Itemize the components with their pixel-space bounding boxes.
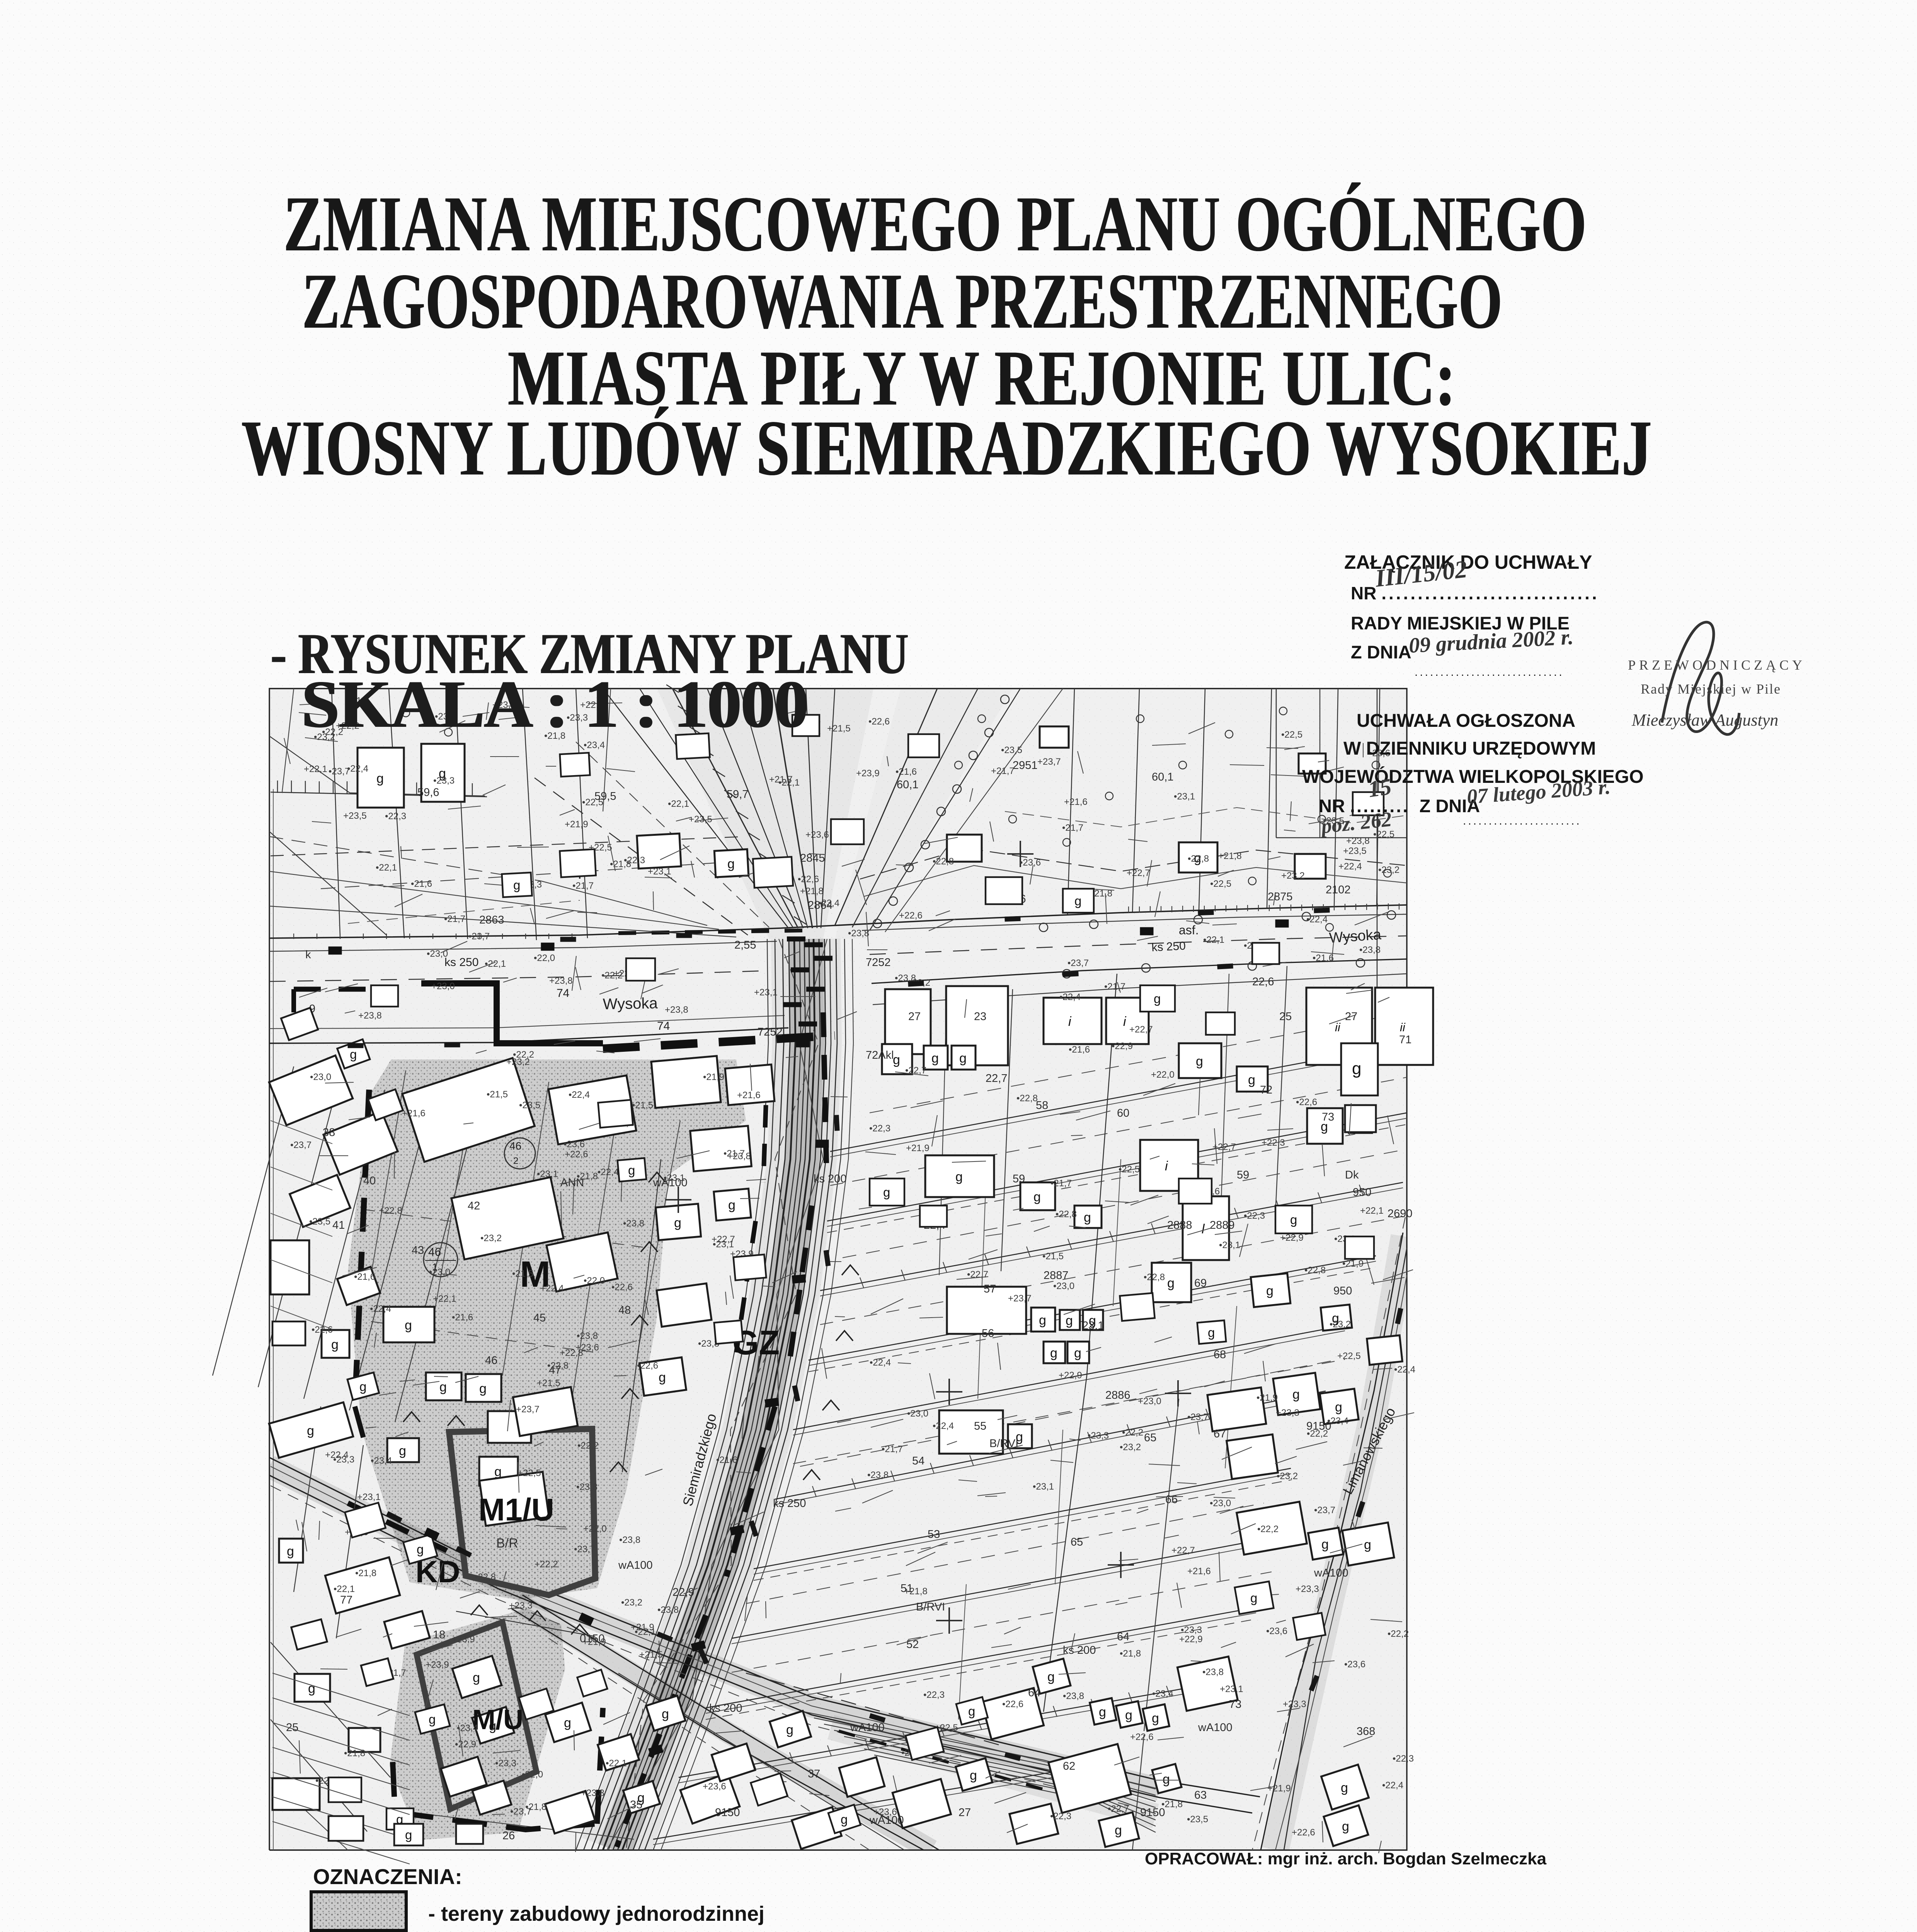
svg-text:25: 25	[1279, 1010, 1292, 1023]
svg-text:+23,8: +23,8	[549, 976, 573, 986]
svg-text:B/R: B/R	[496, 1536, 518, 1551]
svg-text:+22,4: +22,4	[1338, 861, 1362, 872]
svg-text:73: 73	[1322, 1111, 1334, 1123]
svg-text:•21,5: •21,5	[632, 1100, 653, 1111]
svg-text:g: g	[1364, 1537, 1371, 1552]
svg-text:ks 250: ks 250	[1151, 939, 1186, 954]
svg-text:2886: 2886	[1105, 1389, 1130, 1401]
svg-text:g: g	[1115, 1823, 1122, 1838]
svg-text:g: g	[376, 771, 384, 786]
svg-text:•22,3: •22,3	[624, 855, 645, 866]
svg-text:60: 60	[1117, 1107, 1129, 1119]
svg-text:B/RVI: B/RVI	[989, 1437, 1018, 1450]
svg-text:•23,6: •23,6	[1020, 857, 1041, 868]
svg-text:g: g	[1074, 894, 1081, 908]
svg-text:g: g	[1050, 1346, 1057, 1361]
svg-text:Dk: Dk	[1345, 1169, 1359, 1181]
svg-text:•23,1: •23,1	[537, 1169, 558, 1179]
svg-text:+22,6: +22,6	[899, 910, 923, 921]
svg-text:+23,0: +23,0	[1138, 1396, 1161, 1406]
svg-text:g: g	[893, 1053, 900, 1067]
svg-text:•22,1: •22,1	[1203, 935, 1224, 945]
svg-text:•22,3: •22,3	[1393, 1753, 1414, 1764]
svg-text:+23,1: +23,1	[754, 987, 778, 998]
svg-text:•22,0: •22,0	[522, 1769, 543, 1780]
svg-text:•22,0: •22,0	[584, 1276, 605, 1286]
svg-text:•22,4: •22,4	[933, 1421, 954, 1431]
svg-text:+22,2: +22,2	[535, 1559, 558, 1570]
svg-text:27: 27	[908, 1010, 921, 1023]
svg-text:69: 69	[1194, 1277, 1207, 1289]
svg-text:g: g	[439, 1380, 447, 1395]
svg-text:68: 68	[1214, 1349, 1226, 1361]
svg-text:38: 38	[323, 1126, 335, 1139]
svg-text:g: g	[674, 1216, 681, 1230]
svg-text:+21,9: +21,9	[906, 1143, 930, 1153]
svg-text:Wysoka: Wysoka	[603, 995, 658, 1013]
svg-text:•22,8: •22,8	[1016, 1093, 1038, 1104]
svg-text:2,55: 2,55	[734, 939, 756, 951]
svg-text:+23,1: +23,1	[648, 866, 671, 877]
svg-text:•23,8: •23,8	[619, 1535, 640, 1545]
svg-text:•21,6: •21,6	[1313, 953, 1334, 963]
svg-text:•23,7: •23,7	[1314, 1505, 1335, 1515]
svg-text:67: 67	[1214, 1428, 1226, 1440]
svg-text:74: 74	[557, 987, 569, 1000]
svg-text:g: g	[513, 878, 520, 892]
svg-text:+22,7: +22,7	[1171, 1545, 1195, 1556]
svg-text:66: 66	[1165, 1493, 1178, 1506]
svg-text:9150: 9150	[715, 1806, 740, 1819]
svg-text:•22,6: •22,6	[637, 1361, 658, 1371]
svg-text:+23,6: +23,6	[703, 1781, 726, 1792]
svg-text:g: g	[564, 1716, 571, 1730]
svg-text:+22,7: +22,7	[1127, 868, 1150, 878]
svg-text:•21,7: •21,7	[1104, 981, 1125, 992]
svg-text:•23,8: •23,8	[1359, 945, 1381, 955]
svg-text:•23,1: •23,1	[664, 1173, 685, 1183]
svg-text:g: g	[728, 1198, 735, 1213]
svg-text:•21,9: •21,9	[1342, 1259, 1364, 1269]
svg-text:g: g	[1341, 1781, 1348, 1795]
svg-text:g: g	[1167, 1276, 1175, 1291]
svg-text:73: 73	[1229, 1698, 1241, 1711]
svg-text:•23,2: •23,2	[1330, 1319, 1351, 1330]
svg-text:+21,5: +21,5	[827, 723, 851, 734]
svg-text:•22,4: •22,4	[1306, 914, 1328, 925]
svg-text:+22,5: +22,5	[1337, 1351, 1361, 1361]
svg-text:+22,0: +22,0	[583, 1524, 607, 1534]
svg-text:•22,8: •22,8	[1304, 1265, 1326, 1276]
svg-text:•22,4: •22,4	[347, 764, 368, 774]
svg-text:•22,3: •22,3	[869, 1123, 890, 1134]
svg-text:g: g	[959, 1051, 967, 1066]
svg-text:g: g	[473, 1670, 480, 1685]
svg-text:•22,6: •22,6	[312, 1325, 333, 1335]
svg-text:g: g	[659, 1370, 666, 1385]
svg-text:g: g	[727, 857, 735, 871]
svg-text:•22,5: •22,5	[1210, 879, 1231, 889]
svg-text:g: g	[1099, 1705, 1106, 1719]
svg-text:•21,7: •21,7	[882, 1444, 903, 1454]
svg-text:•21,5: •21,5	[512, 1269, 533, 1279]
svg-text:•23,4: •23,4	[1327, 1416, 1348, 1426]
svg-text:+21,6: +21,6	[1064, 797, 1088, 807]
svg-text:•23,6: •23,6	[1266, 1626, 1287, 1636]
svg-text:•23,8: •23,8	[867, 1470, 889, 1480]
svg-text:7252: 7252	[866, 956, 891, 969]
svg-text:•23,7: •23,7	[329, 766, 350, 777]
svg-text:+23,3: +23,3	[1296, 1584, 1319, 1594]
svg-text:g: g	[331, 1337, 339, 1352]
svg-text:g: g	[1066, 1313, 1073, 1328]
svg-text:•23,7: •23,7	[1067, 958, 1089, 968]
svg-text:g: g	[405, 1828, 412, 1842]
svg-text:•22,4: •22,4	[1382, 1780, 1403, 1791]
svg-text:+23,7: +23,7	[1008, 1293, 1032, 1304]
svg-text:•23,2: •23,2	[1378, 865, 1399, 875]
svg-text:g: g	[399, 1444, 406, 1458]
svg-text:•22,9: •22,9	[1112, 1041, 1133, 1051]
svg-text:+22,6: +22,6	[565, 1149, 588, 1160]
svg-text:g: g	[1084, 1210, 1091, 1225]
svg-text:•23,7: •23,7	[1187, 1412, 1209, 1422]
svg-text:g: g	[479, 1381, 487, 1396]
svg-text:37: 37	[808, 1768, 820, 1780]
svg-text:•23,8: •23,8	[577, 1331, 598, 1341]
svg-text:•23,3: •23,3	[1181, 1625, 1202, 1635]
svg-text:+22,4: +22,4	[540, 1283, 564, 1294]
svg-text:g: g	[1250, 1591, 1257, 1605]
svg-text:•21,8: •21,8	[355, 1568, 376, 1578]
svg-text:+22,1: +22,1	[433, 1294, 456, 1304]
svg-text:•21,7: •21,7	[1050, 1178, 1072, 1189]
svg-text:g: g	[308, 1681, 315, 1696]
svg-text:g: g	[1033, 1190, 1041, 1204]
svg-text:g: g	[841, 1812, 848, 1827]
svg-text:+22,5: +22,5	[518, 1468, 541, 1478]
svg-text:•22,1: •22,1	[635, 1627, 656, 1637]
svg-text:54: 54	[912, 1455, 924, 1467]
svg-text:g: g	[662, 1707, 669, 1721]
svg-text:•21,6: •21,6	[716, 1455, 737, 1465]
svg-text:60,1: 60,1	[897, 779, 918, 791]
svg-text:2887: 2887	[1044, 1269, 1069, 1282]
svg-text:•23,1: •23,1	[713, 1239, 734, 1250]
svg-text:+21,6: +21,6	[1187, 1566, 1211, 1577]
svg-text:+23,8: +23,8	[665, 1005, 688, 1015]
svg-text:74: 74	[657, 1020, 670, 1032]
svg-text:•22,0: •22,0	[534, 953, 555, 963]
svg-text:g: g	[970, 1768, 977, 1783]
svg-text:•23,7: •23,7	[574, 1544, 595, 1554]
svg-text:M/U: M/U	[472, 1704, 523, 1735]
svg-text:•23,5: •23,5	[309, 1216, 330, 1227]
svg-text:65: 65	[1144, 1432, 1156, 1444]
svg-text:ks 200: ks 200	[1063, 1644, 1096, 1656]
svg-text:•22,1: •22,1	[485, 959, 506, 969]
svg-text:+22,0: +22,0	[1151, 1070, 1175, 1080]
svg-text:ii: ii	[1335, 1020, 1341, 1034]
svg-text:•21,6: •21,6	[411, 879, 432, 889]
svg-text:•22,2: •22,2	[1388, 1629, 1409, 1639]
svg-text:•21,5: •21,5	[1042, 1251, 1064, 1262]
svg-text:•23,4: •23,4	[818, 898, 839, 908]
svg-text:•23,2: •23,2	[621, 1597, 642, 1608]
svg-text:•21,9: •21,9	[1256, 1393, 1278, 1403]
svg-text:•22,1: •22,1	[376, 862, 397, 873]
svg-text:+21,7: +21,7	[991, 766, 1015, 776]
svg-text:+23,3: +23,3	[1276, 1408, 1299, 1418]
svg-text:+21,8: +21,8	[904, 1586, 928, 1597]
svg-text:+23,7: +23,7	[1037, 757, 1061, 767]
svg-text:41: 41	[332, 1219, 345, 1231]
svg-text:+22,6: +22,6	[1130, 1732, 1154, 1742]
svg-text:•22,1: •22,1	[606, 1758, 627, 1769]
svg-text:•21,8: •21,8	[344, 1748, 365, 1759]
svg-text:•22,6: •22,6	[1296, 1097, 1317, 1107]
svg-text:71: 71	[1399, 1034, 1411, 1046]
svg-text:•23,4: •23,4	[371, 1456, 392, 1466]
svg-text:wA100: wA100	[1314, 1567, 1348, 1579]
svg-text:g: g	[883, 1185, 890, 1199]
svg-text:g: g	[931, 1051, 939, 1066]
svg-text:+23,3: +23,3	[509, 1600, 533, 1611]
svg-text:•23,5: •23,5	[1001, 745, 1022, 755]
svg-text:+23,9: +23,9	[426, 1660, 449, 1670]
svg-text:63: 63	[1194, 1789, 1207, 1801]
svg-text:35: 35	[630, 1799, 642, 1811]
svg-text:•23,8: •23,8	[623, 1218, 644, 1229]
svg-text:•23,1: •23,1	[1033, 1481, 1054, 1492]
svg-text:+23,8: +23,8	[1346, 836, 1370, 846]
svg-text:g: g	[786, 1723, 793, 1737]
svg-text:•23,2: •23,2	[1120, 1442, 1141, 1452]
svg-text:•23,0: •23,0	[429, 1267, 450, 1277]
svg-text:k: k	[305, 949, 311, 961]
svg-text:+21,9: +21,9	[1267, 1783, 1291, 1794]
svg-text:26: 26	[502, 1830, 515, 1842]
svg-text:ks 250: ks 250	[444, 956, 478, 969]
svg-text:55: 55	[974, 1420, 986, 1432]
svg-text:46: 46	[485, 1354, 497, 1367]
svg-text:62: 62	[1063, 1760, 1075, 1772]
svg-text:•22,3: •22,3	[1050, 1811, 1071, 1821]
svg-text:+22,9: +22,9	[1179, 1634, 1203, 1645]
svg-text:•23,3: •23,3	[433, 776, 455, 786]
svg-text:g: g	[968, 1704, 975, 1718]
svg-text:+23,7: +23,7	[516, 1404, 540, 1415]
svg-text:•23,0: •23,0	[427, 949, 448, 959]
svg-text:M1/U: M1/U	[478, 1492, 554, 1527]
svg-text:•23,1: •23,1	[1219, 1240, 1240, 1250]
svg-text:+21,9: +21,9	[565, 819, 588, 830]
svg-text:•23,3: •23,3	[495, 1758, 516, 1769]
svg-text:•23,0: •23,0	[907, 1408, 928, 1419]
svg-text:77: 77	[340, 1594, 352, 1606]
svg-text:g: g	[1152, 1711, 1159, 1726]
svg-text:•22,8: •22,8	[1144, 1272, 1165, 1282]
svg-text:+22,9: +22,9	[1059, 1370, 1082, 1381]
svg-text:2888: 2888	[1167, 1219, 1192, 1231]
svg-text:•21,7: •21,7	[1062, 823, 1083, 833]
svg-text:•22,3: •22,3	[923, 1690, 945, 1700]
svg-text:2889: 2889	[1210, 1219, 1235, 1231]
svg-text:•22,4: •22,4	[1059, 992, 1081, 1002]
svg-text:•22,5: •22,5	[582, 797, 603, 808]
svg-text:ii: ii	[1400, 1020, 1406, 1034]
svg-text:+23,6: +23,6	[873, 1807, 897, 1817]
svg-text:•22,4: •22,4	[1394, 1364, 1415, 1375]
svg-text:g: g	[628, 1163, 635, 1177]
svg-text:64: 64	[1028, 1687, 1040, 1699]
svg-text:+21,8: +21,8	[800, 886, 824, 896]
svg-text:22,7: 22,7	[986, 1072, 1007, 1085]
svg-text:•21,6: •21,6	[1069, 1044, 1090, 1055]
svg-text:•22,6: •22,6	[868, 716, 890, 727]
svg-text:•23,3: •23,3	[1088, 1430, 1109, 1441]
svg-text:•22,8: •22,8	[1188, 854, 1209, 864]
svg-text:27: 27	[958, 1806, 971, 1819]
svg-text:g: g	[1196, 1054, 1203, 1069]
svg-text:+23,8: +23,8	[581, 1788, 604, 1798]
svg-text:•23,4: •23,4	[457, 1723, 478, 1733]
svg-text:43: 43	[412, 1244, 424, 1257]
svg-text:•22,4: •22,4	[870, 1357, 891, 1368]
svg-text:65: 65	[1071, 1536, 1083, 1548]
svg-text:•22,5: •22,5	[1281, 730, 1302, 740]
svg-text:•23,4: •23,4	[1152, 1689, 1173, 1699]
svg-text:+22,3: +22,3	[1262, 1138, 1285, 1148]
svg-text:+23,0: +23,0	[431, 981, 455, 992]
svg-text:•23,2: •23,2	[480, 1233, 502, 1243]
svg-text:•22,2: •22,2	[1307, 1429, 1328, 1439]
svg-text:•22,2: •22,2	[1122, 1427, 1143, 1438]
svg-text:•22,1: •22,1	[778, 777, 800, 788]
svg-text:•22,6: •22,6	[611, 1282, 633, 1293]
svg-text:+23,5: +23,5	[343, 811, 367, 821]
svg-text:g: g	[1321, 1537, 1329, 1552]
svg-text:ks 250: ks 250	[773, 1497, 806, 1510]
svg-text:asf.: asf.	[1179, 923, 1199, 937]
svg-text:•22,8: •22,8	[475, 1572, 496, 1582]
svg-text:18: 18	[433, 1629, 445, 1641]
svg-text:+21,8: +21,8	[1218, 851, 1242, 861]
svg-text:•22,6: •22,6	[1002, 1699, 1023, 1709]
svg-text:g: g	[350, 1047, 357, 1061]
svg-text:56: 56	[982, 1327, 994, 1340]
svg-text:368: 368	[1357, 1725, 1375, 1738]
svg-text:22,6: 22,6	[1252, 976, 1274, 988]
svg-text:+23,9: +23,9	[451, 1634, 475, 1645]
svg-text:g: g	[1154, 992, 1161, 1006]
svg-text:g: g	[429, 1712, 436, 1726]
svg-text:40: 40	[363, 1175, 376, 1187]
svg-text:•22,3: •22,3	[1244, 1211, 1265, 1221]
svg-text:•21,6: •21,6	[354, 1272, 375, 1282]
svg-text:•22,8: •22,8	[547, 1361, 569, 1371]
svg-text:•22,4: •22,4	[569, 1090, 590, 1100]
svg-text:7252: 7252	[758, 1026, 783, 1038]
svg-text:g: g	[417, 1542, 424, 1556]
svg-text:•22,8: •22,8	[1056, 1209, 1077, 1219]
svg-text:g: g	[1047, 1670, 1055, 1684]
svg-text:+22,1: +22,1	[304, 764, 327, 774]
svg-text:42: 42	[468, 1200, 480, 1212]
svg-text:g: g	[1039, 1313, 1046, 1328]
svg-text:•22,9: •22,9	[455, 1739, 476, 1750]
svg-text:g: g	[1163, 1772, 1170, 1787]
svg-text:46: 46	[509, 1140, 521, 1152]
svg-text:+23,5: +23,5	[1343, 846, 1367, 856]
svg-text:•22,6: •22,6	[798, 874, 819, 884]
svg-text:+22,4: +22,4	[325, 1450, 349, 1460]
svg-text:•23,8: •23,8	[1202, 1667, 1224, 1677]
svg-text:g: g	[1125, 1708, 1132, 1723]
svg-text:•23,1: •23,1	[1174, 791, 1195, 802]
svg-text:g: g	[287, 1544, 294, 1559]
svg-text:•23,7: •23,7	[290, 1140, 312, 1150]
svg-text:ks 200: ks 200	[814, 1173, 846, 1185]
svg-text:wA100: wA100	[618, 1559, 653, 1571]
svg-text:•22,1: •22,1	[334, 1584, 355, 1594]
svg-text:+23,1: +23,1	[357, 1492, 381, 1502]
svg-text:22,9: 22,9	[672, 1586, 694, 1599]
svg-text:•23,8: •23,8	[576, 1482, 598, 1492]
svg-text:ks 200: ks 200	[709, 1702, 742, 1714]
svg-text:23: 23	[974, 1010, 986, 1023]
svg-text:+23,3: +23,3	[1283, 1699, 1306, 1709]
svg-text:59: 59	[1237, 1169, 1249, 1181]
svg-text:•22,5: •22,5	[1119, 1164, 1140, 1175]
svg-text:+21,6: +21,6	[402, 1108, 426, 1119]
svg-text:g: g	[405, 1318, 412, 1333]
svg-text:+23,6: +23,6	[805, 830, 829, 840]
svg-text:g: g	[1290, 1213, 1297, 1227]
svg-text:•23,5: •23,5	[1187, 1814, 1208, 1825]
svg-text:•23,6: •23,6	[564, 1139, 585, 1150]
svg-text:•23,0: •23,0	[1053, 1281, 1074, 1291]
svg-text:g: g	[1208, 1325, 1215, 1340]
svg-text:•22,2: •22,2	[577, 1440, 599, 1451]
svg-text:45: 45	[533, 1312, 546, 1324]
svg-text:•23,8: •23,8	[657, 1605, 679, 1615]
svg-text:•23,8: •23,8	[1063, 1691, 1084, 1701]
svg-text:53: 53	[928, 1528, 940, 1541]
svg-text:+21,9: +21,9	[582, 1637, 606, 1647]
svg-text:•21,7: •21,7	[572, 881, 594, 891]
svg-text:•23,8: •23,8	[848, 928, 869, 939]
svg-text:g: g	[1266, 1284, 1273, 1298]
svg-text:•23,7: •23,7	[468, 931, 490, 942]
svg-text:•22,2: •22,2	[1257, 1524, 1279, 1534]
svg-text:g: g	[359, 1379, 366, 1394]
svg-text:57: 57	[984, 1283, 996, 1295]
svg-text:g: g	[1248, 1073, 1255, 1087]
svg-text:g: g	[955, 1170, 963, 1184]
svg-text:46: 46	[428, 1246, 441, 1259]
svg-text:+23,8: +23,8	[358, 1010, 382, 1021]
svg-text:+22,6: +22,6	[1292, 1827, 1315, 1838]
svg-text:•22,4: •22,4	[598, 1167, 619, 1177]
svg-text:•21,8: •21,8	[1120, 1648, 1141, 1659]
svg-text:g: g	[1352, 1059, 1361, 1078]
svg-text:64: 64	[1117, 1631, 1129, 1643]
svg-text:59,6: 59,6	[417, 786, 439, 799]
svg-text:•23,6: •23,6	[1344, 1659, 1365, 1670]
svg-text:2951: 2951	[1013, 759, 1038, 772]
svg-text:•21,9: •21,9	[703, 1072, 724, 1082]
